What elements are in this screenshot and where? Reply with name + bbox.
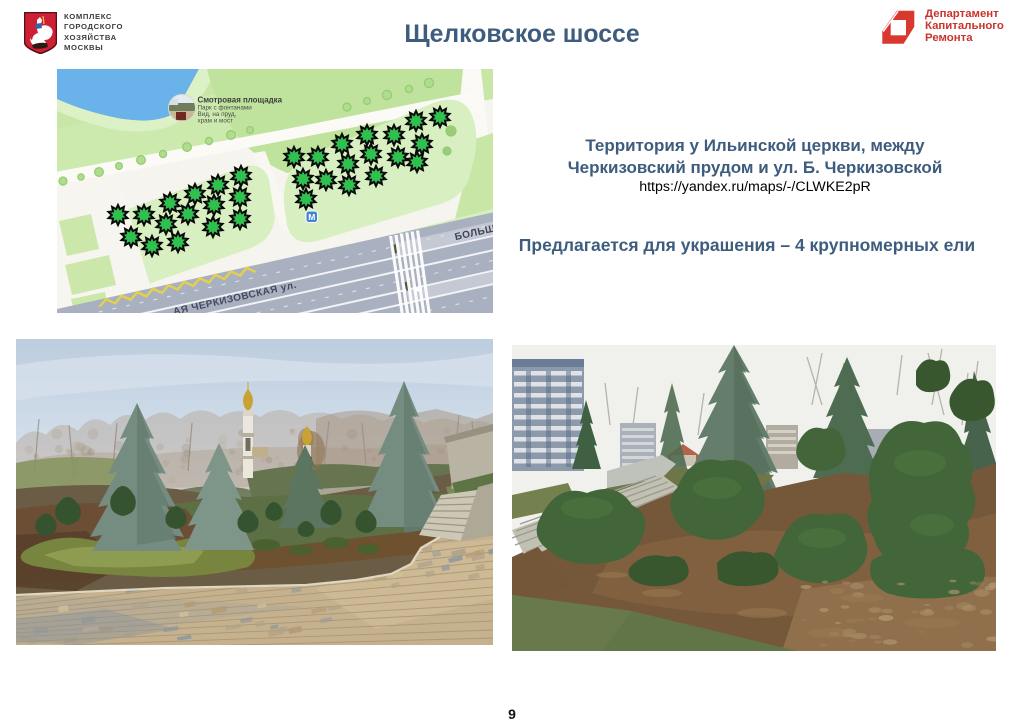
svg-text:М: М xyxy=(308,212,315,222)
svg-text:храм и мост: храм и мост xyxy=(198,118,233,125)
svg-text:Смотровая площадка: Смотровая площадка xyxy=(198,96,283,105)
